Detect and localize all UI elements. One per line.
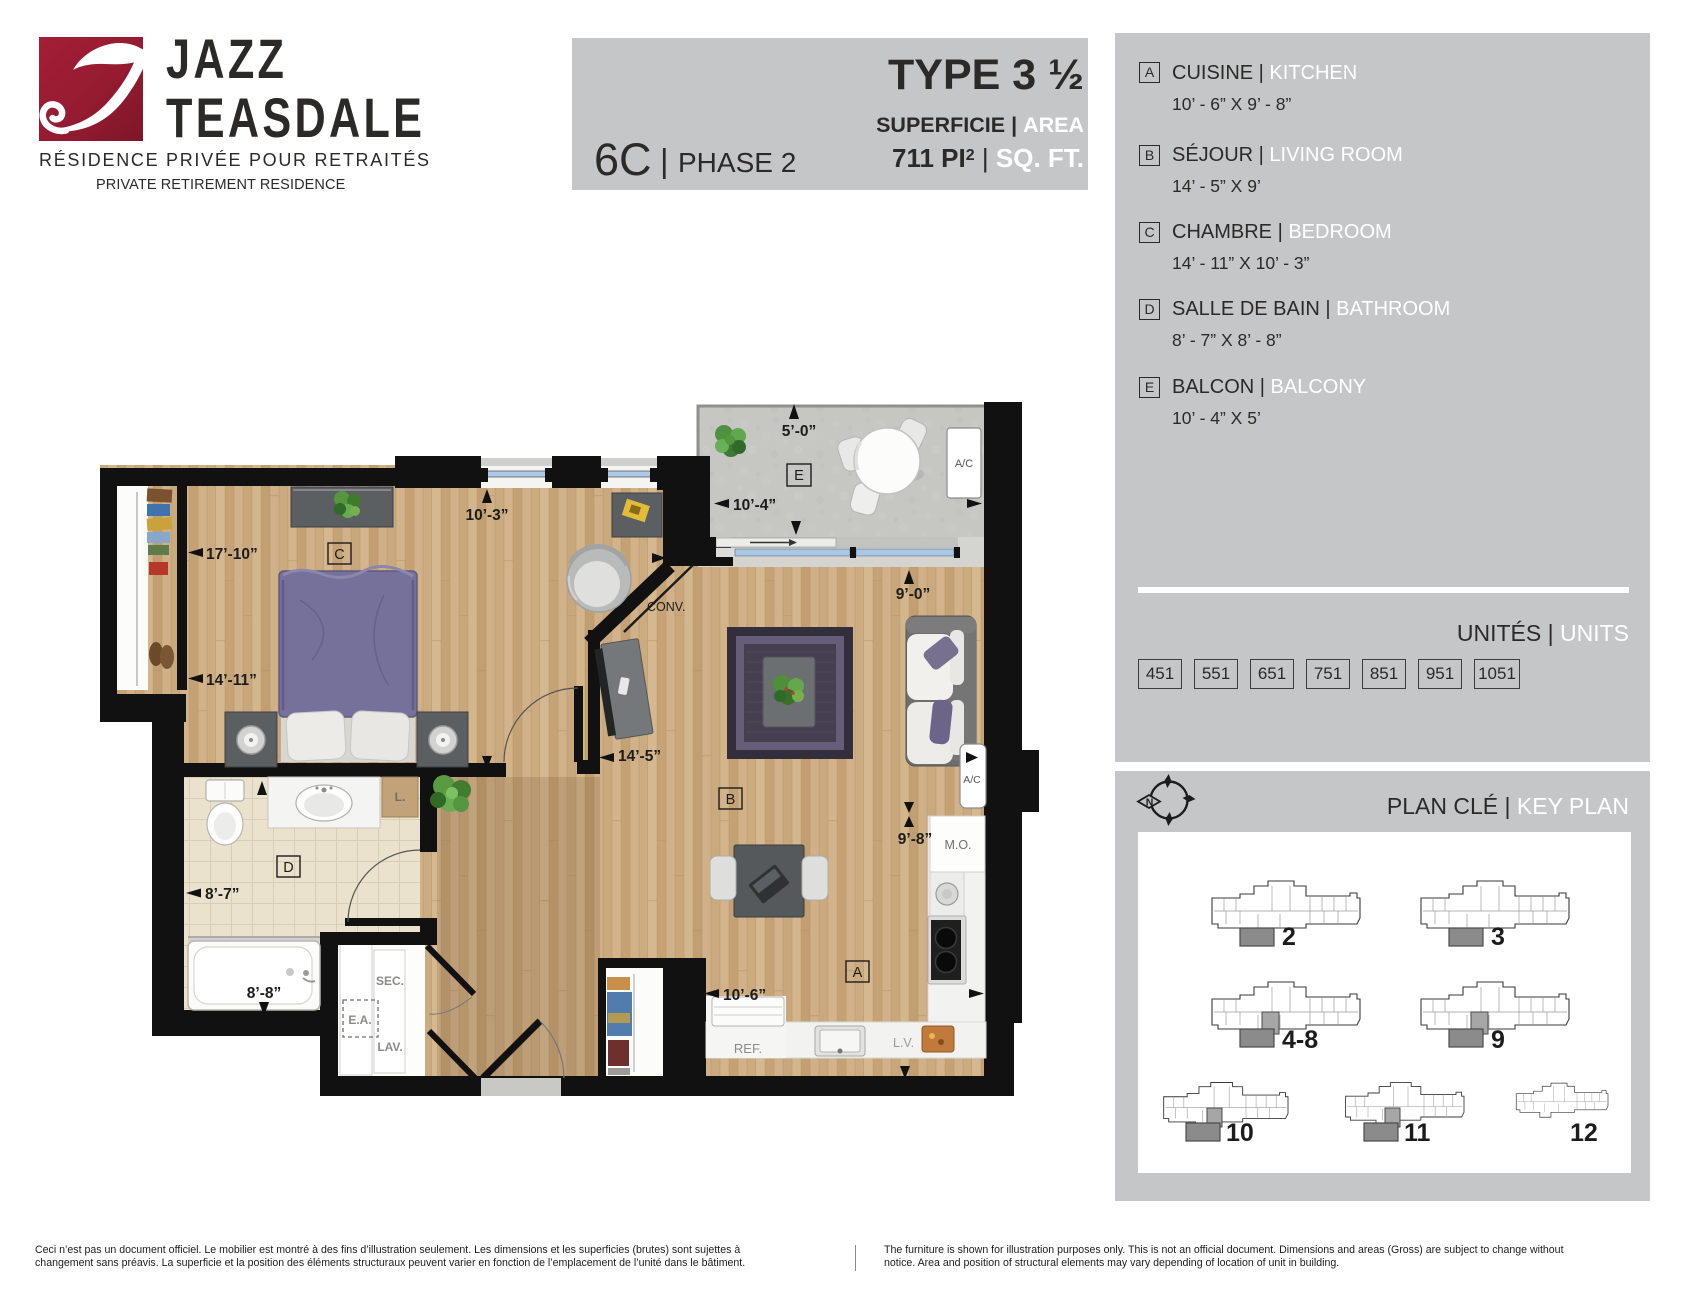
svg-text:17’-10”: 17’-10”: [206, 546, 258, 563]
svg-text:14’-11”: 14’-11”: [206, 672, 257, 689]
svg-text:LAV.: LAV.: [377, 1040, 402, 1054]
svg-text:10’-4”: 10’-4”: [733, 497, 776, 514]
svg-text:10: 10: [1226, 1119, 1254, 1147]
svg-text:11: 11: [1404, 1119, 1431, 1147]
svg-text:E.A.: E.A.: [348, 1013, 371, 1027]
svg-text:10’-3”: 10’-3”: [465, 507, 508, 524]
svg-text:N: N: [1146, 797, 1154, 809]
svg-text:A: A: [853, 965, 863, 981]
svg-text:2: 2: [1282, 923, 1296, 951]
svg-text:CONV.: CONV.: [647, 600, 685, 614]
svg-text:8’-7”: 8’-7”: [205, 886, 239, 903]
svg-text:10’-6”: 10’-6”: [723, 987, 766, 1004]
svg-text:A/C: A/C: [963, 774, 981, 786]
svg-text:A/C: A/C: [955, 458, 973, 470]
svg-text:9’-0”: 9’-0”: [896, 586, 930, 603]
svg-text:B: B: [726, 792, 736, 808]
svg-text:14’-5”: 14’-5”: [618, 748, 661, 765]
svg-text:REF.: REF.: [734, 1041, 762, 1056]
svg-text:E: E: [794, 468, 804, 484]
svg-text:SEC.: SEC.: [376, 974, 404, 988]
svg-text:C: C: [334, 547, 344, 563]
svg-text:3: 3: [1491, 923, 1505, 951]
svg-text:9’-8”: 9’-8”: [898, 831, 932, 848]
svg-text:4-8: 4-8: [1282, 1026, 1318, 1054]
svg-text:D: D: [283, 860, 293, 876]
svg-text:L.V.: L.V.: [893, 1036, 914, 1050]
svg-text:L.: L.: [395, 790, 406, 804]
svg-text:8’-8”: 8’-8”: [247, 985, 281, 1002]
svg-text:M.O.: M.O.: [944, 838, 971, 852]
svg-text:9: 9: [1491, 1026, 1505, 1054]
svg-text:12: 12: [1570, 1119, 1598, 1147]
svg-text:5’-0”: 5’-0”: [782, 423, 816, 440]
